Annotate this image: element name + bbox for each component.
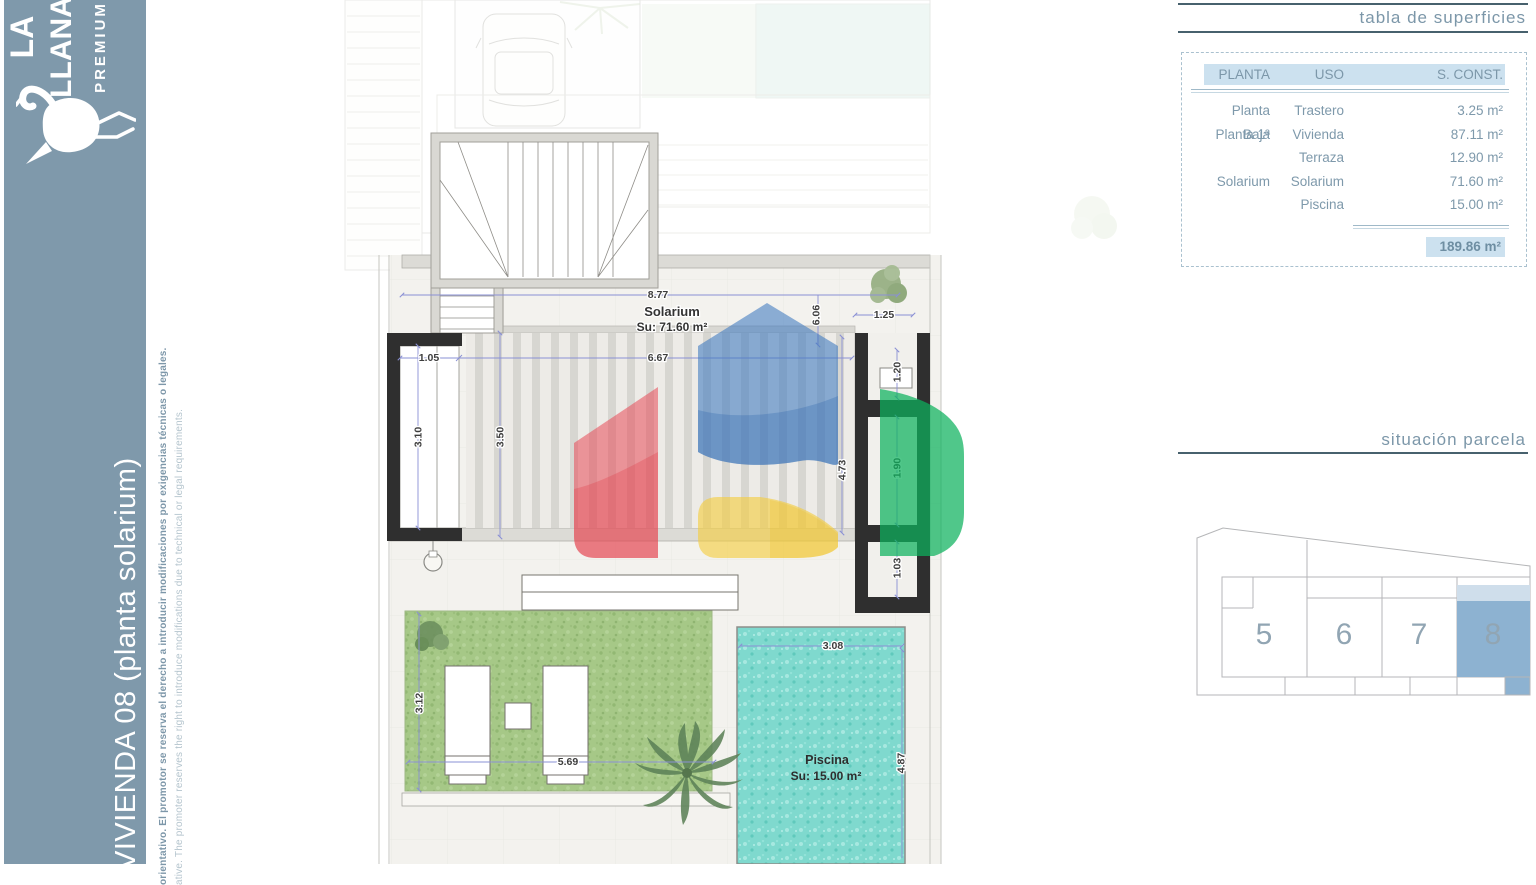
surfaces-table: PLANTA USO S. CONST. Planta Baja Traster… [1181, 52, 1527, 267]
flamingo-logo-icon [16, 80, 136, 164]
dim-shaft-width: 1.25 [874, 309, 895, 321]
plot8-light-band [1457, 585, 1530, 601]
header-sconst: S. CONST. [1346, 64, 1505, 85]
dim-skylight: 1.20 [892, 362, 904, 383]
dim-grass-height: 3.12 [414, 693, 426, 714]
dim-room-low: 1.03 [892, 558, 904, 579]
plot-8: 8 [1485, 618, 1502, 651]
cell-uso: Terraza [1272, 146, 1346, 170]
header-planta: PLANTA [1204, 64, 1272, 85]
surfaces-table-rows: Planta Baja Trastero 3.25 m² Planta 1ª V… [1204, 99, 1505, 217]
cell-planta: Planta 1ª [1204, 123, 1272, 147]
sheet-title: VIVIENDA 08 (planta solarium) [112, 310, 140, 870]
ghost-tree [1071, 196, 1117, 239]
cell-sconst: 87.11 m² [1346, 123, 1505, 147]
dim-pergola-width: 6.67 [648, 352, 669, 364]
cell-uso: Piscina [1272, 193, 1346, 217]
top-rule [1178, 3, 1528, 5]
bench [522, 575, 738, 610]
table-row: Planta 1ª Vivienda 87.11 m² [1204, 123, 1505, 147]
table-row: Solarium Solarium 71.60 m² [1204, 170, 1505, 194]
surfaces-table-title: tabla de superficies [1180, 8, 1526, 28]
pool-area-label: Su: 15.00 m² [791, 769, 862, 783]
dim-top-width: 8.77 [648, 289, 669, 301]
brand-line-la: LA [2, 7, 42, 67]
parcel-diagram: 5 6 7 8 [1188, 512, 1536, 707]
brand-sidebar: LA LLANA PREMIUM VIVIENDA 08 (planta sol… [4, 0, 146, 864]
dim-window: 1.05 [419, 352, 440, 364]
dim-left-height: 3.10 [413, 427, 425, 448]
surfaces-title-rule [1178, 31, 1528, 33]
plot-7: 7 [1411, 618, 1428, 651]
solarium-area-label: Su: 71.60 m² [637, 320, 708, 334]
parcel-title-rule [1178, 452, 1528, 454]
dim-walk-height: 4.73 [837, 460, 849, 481]
plot8-tab [1505, 677, 1530, 695]
cell-uso: Vivienda [1272, 123, 1346, 147]
cell-planta [1204, 146, 1272, 170]
ghost-car [476, 14, 572, 126]
cell-planta [1204, 193, 1272, 217]
table-row: Terraza 12.90 m² [1204, 146, 1505, 170]
dim-depth: 6.06 [811, 305, 823, 326]
header-uso: USO [1272, 64, 1346, 85]
cell-uso: Solarium [1272, 170, 1346, 194]
pool-label: Piscina [805, 753, 850, 767]
header-rule [1191, 89, 1509, 93]
cell-sconst: 15.00 m² [1346, 193, 1505, 217]
parcel-title: situación parcela [1180, 430, 1526, 450]
pool [737, 627, 905, 864]
total-rule [1353, 225, 1509, 229]
dim-inner-height: 3.50 [495, 427, 507, 448]
cell-sconst: 71.60 m² [1346, 170, 1505, 194]
floor-plan: 8.77 6.06 1.25 1.05 6.67 3.10 3.50 4.73 … [320, 0, 1140, 864]
dim-grass-width: 5.69 [558, 756, 579, 768]
total-surface: 189.86 m² [1426, 237, 1505, 257]
table-row: Piscina 15.00 m² [1204, 193, 1505, 217]
watermark-green [880, 389, 964, 556]
disclaimer-spanish: orientativo. El promotor se reserva el d… [157, 315, 171, 885]
dim-pool-width: 3.08 [823, 640, 844, 652]
plan-sheet: { "sidebar": { "brand": { "line1": "LA",… [0, 0, 1536, 864]
cell-planta: Solarium [1204, 170, 1272, 194]
side-table [505, 703, 531, 729]
plot-6: 6 [1336, 618, 1353, 651]
garden-edge-band [402, 793, 730, 806]
plot-5: 5 [1256, 618, 1273, 651]
solarium-label: Solarium [644, 304, 700, 319]
dim-pool-height: 4.87 [896, 753, 908, 774]
surfaces-table-header: PLANTA USO S. CONST. [1204, 64, 1505, 85]
disclaimer-english: ative. The promoter reserves the right t… [173, 315, 187, 885]
cell-sconst: 12.90 m² [1346, 146, 1505, 170]
table-row: Planta Baja Trastero 3.25 m² [1204, 99, 1505, 123]
